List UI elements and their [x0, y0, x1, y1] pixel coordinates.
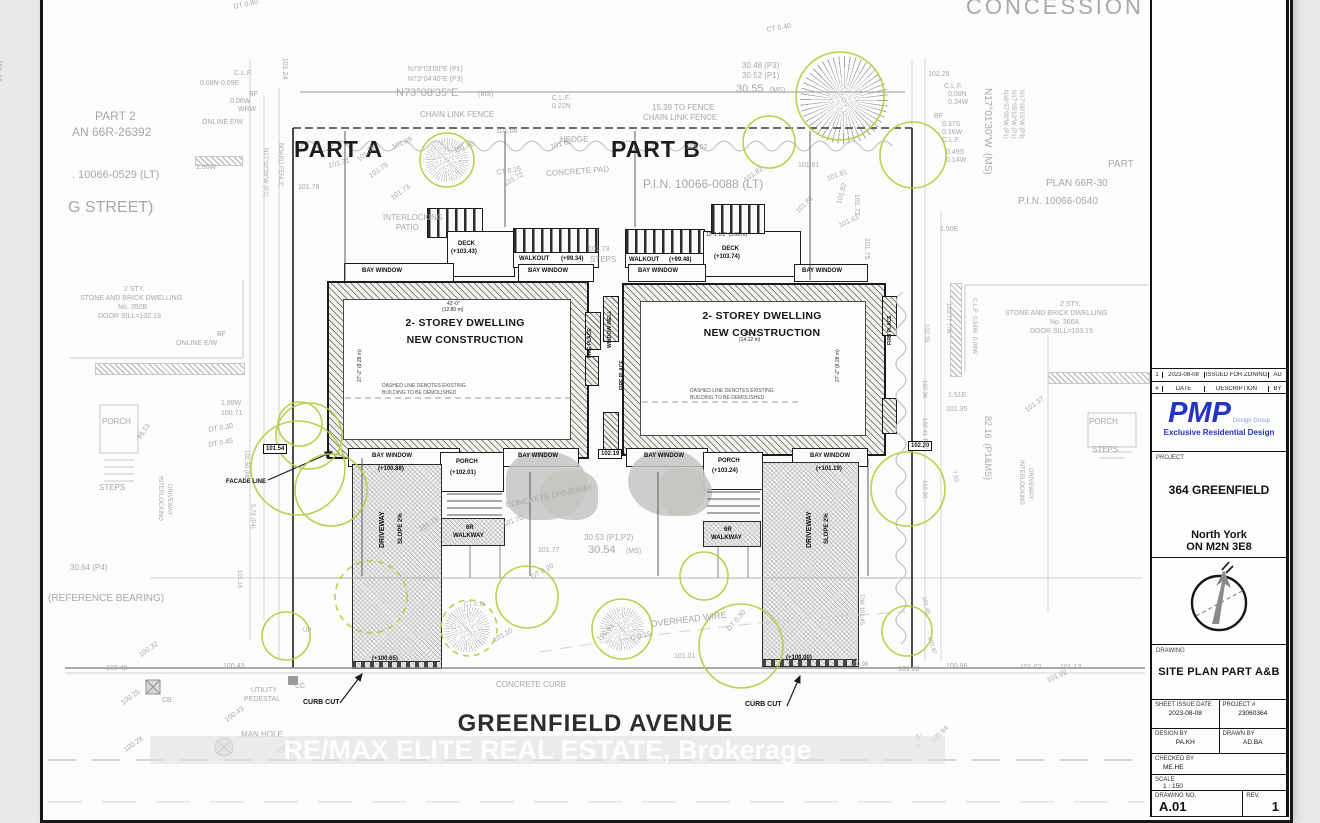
annotation-label: DT 0.20	[530, 563, 555, 581]
annotation-label: PORCH	[456, 459, 478, 465]
annotation-label: DT 0.80	[233, 0, 259, 11]
annotation-label: 100.96	[946, 663, 967, 670]
annotation-label: (+100.00)	[786, 655, 812, 661]
annotation-label: 1.89W	[221, 400, 241, 407]
annotation-label: 101.73	[390, 184, 412, 202]
annotation-label: 6R	[466, 525, 474, 531]
annotation-label: 102.36	[921, 380, 927, 398]
annotation-label: BAY WINDOW	[528, 268, 568, 274]
annotation-label: 5.79 (P4)	[249, 504, 255, 529]
annotation-label: DRIVEWAY	[1027, 468, 1033, 499]
annotation-label: 82.16 (P1&MS)	[983, 416, 992, 480]
annotation-label: WALKWAY	[453, 533, 484, 539]
annotation-label: (REFERENCE BEARING)	[48, 594, 164, 604]
annotation-label: 101.01	[674, 653, 695, 660]
annotation-label: PLAN 66R-30	[1046, 179, 1108, 189]
annotation-label: 101.03	[898, 666, 919, 673]
annotation-label: PART 2	[95, 110, 136, 122]
annotation-label: . 10066-0529 (LT)	[72, 170, 159, 181]
annotation-label: 12'-1 1/2" (3.69 m)	[706, 233, 747, 238]
annotation-label: CONCRETE DRIVEWAY	[505, 484, 594, 510]
annotation-label: 100.71	[221, 410, 242, 417]
annotation-label: 30.54	[588, 545, 616, 556]
annotation-label: BF	[934, 113, 943, 120]
annotation-label: 0.08N-0.09E	[200, 80, 239, 87]
annotation-label: STEPS	[590, 256, 616, 264]
annotation-label: PORCH	[1089, 418, 1118, 426]
annotation-label: BAY WINDOW	[518, 453, 558, 459]
annotation-layer: CONCESSION 1DT 0.80N73°03'00"E (P1)N73°0…	[0, 0, 1320, 809]
project-name: 364 GREENFIELD	[1152, 483, 1286, 497]
annotation-label: (MS)	[478, 91, 493, 98]
annotation-label: 102.50 (MS)	[243, 450, 249, 483]
annotation-label: WINDOW WELL	[608, 311, 613, 349]
title-block: 1 2023-08-08 ISSUED FOR ZONING AD # DATE…	[1150, 0, 1289, 817]
annotation-label: 101.62	[686, 144, 707, 151]
annotation-label: 0.34W	[948, 99, 968, 106]
annotation-label: BAY WINDOW	[810, 453, 850, 459]
annotation-label: (+99.48)	[669, 257, 692, 263]
annotation-label: BAY WINDOW	[638, 268, 678, 274]
annotation-label: (+99.34)	[561, 256, 584, 262]
project-number-cell: PROJECT # 23060364	[1219, 700, 1287, 728]
annotation-label: STEPS	[1092, 446, 1118, 454]
annotation-label: DRIVEWAY	[806, 511, 813, 548]
checked-by-cell: CHECKED BY ME.HE	[1152, 754, 1286, 774]
annotation-label: WALKOUT	[519, 256, 549, 262]
annotation-label: 103.77 T/W	[945, 303, 951, 334]
drawing-title: SITE PLAN PART A&B	[1152, 666, 1286, 678]
annotation-label: 101.02	[1046, 669, 1068, 684]
annotation-label: 2 STY.	[124, 286, 145, 293]
annotation-label: 0.22N	[552, 103, 571, 110]
annotation-label: AN 66R-26392	[72, 126, 151, 138]
annotation-label: CONCRETE PAD	[546, 166, 609, 178]
annotation-label: WALKOUT	[629, 257, 659, 263]
site-plan: 2- STOREY DWELLING NEW CONSTRUCTION DASH…	[0, 0, 1320, 809]
project-city: North York	[1152, 529, 1286, 541]
annotation-label: (MS)	[626, 548, 641, 555]
annotation-label: FIRE PLACE	[888, 315, 893, 345]
annotation-label: BOARD FENCE	[277, 143, 283, 186]
annotation-label: BAY WINDOW	[372, 453, 412, 459]
annotation-label: (MS)	[770, 87, 785, 94]
annotation-label: 0.49S	[946, 149, 964, 156]
annotation-label: No. 352B	[118, 304, 147, 311]
annotation-label: 1.50E	[940, 226, 958, 233]
annotation-label: 101.24	[281, 58, 288, 79]
annotation-label: 101.37	[1024, 396, 1046, 414]
annotation-label: 101.54	[263, 444, 287, 454]
annotation-label: UP	[303, 628, 311, 634]
annotation-label: G STREET)	[68, 200, 153, 216]
annotation-label: INTERLOCKING	[157, 476, 163, 521]
annotation-label: 101.73	[853, 194, 860, 215]
north-arrow-icon	[1152, 558, 1286, 644]
annotation-label: 102.41 T/W	[921, 418, 927, 449]
annotation-label: 101.81	[826, 169, 849, 183]
annotation-label: CONCRETE CURB	[496, 681, 566, 689]
annotation-label: 100.97	[926, 636, 937, 655]
annotation-label: DECK	[458, 241, 475, 247]
drawing-label: DRAWING	[1152, 645, 1286, 654]
annotation-label: N73°03'00"E (P1)	[408, 66, 463, 73]
annotation-label: BF	[249, 91, 258, 98]
annotation-label: STONE AND BRICK DWELLING	[80, 295, 182, 302]
annotation-label: 100.98	[850, 662, 868, 668]
annotation-label: DECK	[722, 246, 739, 252]
drawn-by-cell: DRAWN BY AD.BA	[1219, 729, 1287, 753]
annotation-label: 102.35	[923, 324, 929, 342]
annotation-label: CURB CUT	[745, 701, 782, 708]
annotation-label: N17°00'15"W (P3)	[1018, 90, 1024, 139]
annotation-label: CT 0.15	[464, 602, 485, 608]
annotation-label: PORCH	[102, 418, 131, 426]
annotation-label: N17°02'30"W (P1)	[262, 148, 268, 197]
annotation-label: FIRE PLACE	[620, 360, 625, 390]
project-block: PROJECT 364 GREENFIELD North York ON M2N…	[1152, 452, 1286, 558]
annotation-label: 101.75	[368, 162, 390, 180]
annotation-label: N17°01'30"W (MS)	[982, 88, 992, 175]
design-by-cell: DESIGN BY PA.KH	[1152, 729, 1219, 753]
annotation-label: OVERHEAD WIRE	[650, 611, 727, 629]
annotation-label: 101.10	[492, 627, 514, 644]
annotation-label: DOOR SILL=103.15	[1030, 328, 1093, 335]
annotation-label: (+103.74)	[714, 254, 740, 260]
annotation-label: 27'-2" (8.28 m)	[358, 349, 363, 382]
annotation-label: (+102.01)	[450, 470, 476, 476]
annotation-label: (14.12 m)	[739, 338, 760, 343]
annotation-label: 0.16W	[942, 129, 962, 136]
annotation-label: N73°04'40"E (P3)	[408, 76, 463, 83]
annotation-label: 101.77	[538, 547, 559, 554]
annotation-label: STONE AND BRICK DWELLING	[1005, 310, 1107, 317]
annotation-label: 101.46	[920, 596, 931, 615]
annotation-label: 30.53 (P1,P2)	[584, 534, 633, 542]
annotation-label: 27'-2" (8.28 m)	[836, 349, 841, 382]
annotation-label: 101.82	[836, 182, 848, 205]
annotation-label: 100.43	[224, 706, 246, 724]
annotation-label: N73°08'35"E	[396, 88, 458, 99]
annotation-label: DOOR SILL=102.19	[98, 313, 161, 320]
sheet-issue-date-cell: SHEET ISSUE DATE 2023-08-08	[1152, 700, 1219, 728]
annotation-label: (12.80 m)	[442, 308, 463, 313]
annotation-label: 102.19	[598, 449, 622, 459]
annotation-label: BAY WINDOW	[644, 453, 684, 459]
title-fields: SHEET ISSUE DATE 2023-08-08 PROJECT # 23…	[1152, 700, 1286, 817]
annotation-label: 2 STY.	[1060, 301, 1081, 308]
annotation-label: 101.81	[798, 162, 819, 169]
annotation-label: 30.48 (P3)	[742, 62, 779, 70]
annotation-label: BF	[217, 331, 226, 338]
annotation-label: (+101.19)	[816, 466, 842, 472]
annotation-label: BAY WINDOW	[362, 268, 402, 274]
annotation-label: N17°05'10"W (P1)	[1010, 90, 1016, 139]
annotation-label: 101.78	[298, 184, 319, 191]
annotation-label: PEDESTAL	[244, 696, 280, 703]
annotation-label: CONCESSION 1	[966, 0, 1168, 18]
annotation-label: (+103.24)	[712, 468, 738, 474]
annotation-label: 0.08N	[948, 91, 967, 98]
annotation-label: CT 0.40	[766, 23, 792, 34]
north-arrow-block	[1152, 558, 1286, 645]
annotation-label: 100.40	[106, 665, 127, 672]
annotation-label: 15.39 TO FENCE	[652, 104, 714, 112]
annotation-label: 30.55	[736, 84, 764, 95]
annotation-label: 100.43	[223, 663, 244, 670]
annotation-label: 101.02	[1020, 664, 1041, 671]
annotation-label: CHAIN LINK FENCE	[420, 111, 494, 119]
annotation-label: 101.24	[0, 60, 2, 81]
scale-cell: SCALE 1 : 150	[1152, 775, 1286, 790]
annotation-label: UTILITY	[251, 687, 277, 694]
annotation-label: C.L.F 0.94W 0.09W	[971, 298, 977, 354]
annotation-label: DT 0.45	[208, 438, 234, 449]
annotation-label: WALKWAY	[711, 535, 742, 541]
annotation-label: 0.14W	[946, 157, 966, 164]
annotation-label: CB	[162, 697, 172, 704]
drawing-number-cell: DRAWING NO. A.01	[1152, 791, 1242, 817]
annotation-label: 101.73	[418, 516, 440, 533]
annotation-label: 101.66	[496, 128, 517, 135]
annotation-label: (+103.43)	[451, 249, 477, 255]
annotation-label: SLOPE 2%	[824, 513, 830, 544]
annotation-label: C.L.F.	[944, 83, 962, 90]
annotation-label: INTERLOCKING	[1018, 460, 1024, 505]
annotation-label: 101.73	[588, 246, 609, 253]
annotation-label: 7.53	[950, 470, 959, 483]
annotation-label: DRIVEWAY	[166, 484, 172, 515]
annotation-label: C.L.F.	[552, 95, 570, 102]
annotation-label: 100.32	[138, 641, 160, 659]
annotation-label: SLOPE 2%	[398, 513, 404, 544]
annotation-label: 101.80	[453, 141, 476, 155]
annotation-label: 101.69	[391, 136, 413, 151]
annotation-label: FIRE PLACE	[588, 328, 593, 358]
annotation-label: 101.16	[236, 570, 242, 588]
annotation-label: 0.37S	[942, 121, 960, 128]
annotation-label: 101.75	[863, 238, 870, 259]
annotation-label: DT 0.30	[208, 423, 234, 434]
annotation-label: 101.62	[550, 138, 573, 150]
annotation-label: 6R	[724, 527, 732, 533]
annotation-label: CURB CUT	[303, 699, 340, 706]
logo-group-text: Design Group	[1233, 418, 1270, 424]
watermark: RE/MAX ELITE REAL ESTATE, Brokerage	[150, 736, 945, 764]
annotation-label: 1.51E	[948, 392, 966, 399]
annotation-label: 101.35	[946, 406, 967, 413]
annotation-label: 101.82	[795, 195, 815, 215]
annotation-label: 100.28	[123, 736, 145, 754]
annotation-label: PART	[1108, 160, 1134, 170]
revision-table: 1 2023-08-08 ISSUED FOR ZONING AD # DATE…	[1152, 368, 1286, 394]
annotation-label: P.I.N. 10066-0540	[1018, 197, 1098, 207]
logo-pmp-text: PMP	[1168, 397, 1231, 429]
annotation-label: (+100.88)	[378, 466, 404, 472]
annotation-label: INTERLOCKING	[383, 214, 443, 222]
drawing-block: DRAWING SITE PLAN PART A&B	[1152, 645, 1286, 700]
annotation-label: 102.25	[928, 71, 949, 78]
revision-row: 1 2023-08-08 ISSUED FOR ZONING AD	[1152, 369, 1286, 382]
project-postal: ON M2N 3E8	[1152, 541, 1286, 553]
annotation-label: WRW	[238, 106, 256, 113]
logo-tagline: Exclusive Residential Design	[1152, 428, 1286, 437]
annotation-label: 2.86W	[196, 164, 216, 171]
annotation-label: PORCH	[718, 458, 740, 464]
annotation-label: ONLINE E/W	[202, 119, 243, 126]
annotation-label: 100.25	[120, 689, 142, 707]
annotation-label: 102.28	[921, 480, 927, 498]
annotation-label: PATIO	[396, 224, 419, 232]
annotation-label: CHAIN LINK FENCE	[643, 114, 717, 122]
annotation-label: C.L.F.	[234, 70, 252, 77]
annotation-label: T/W 101.45	[858, 594, 864, 625]
company-logo: PMPDesign Group Exclusive Residential De…	[1152, 394, 1286, 452]
annotation-label: DRIVEWAY	[379, 511, 386, 548]
annotation-label: 101.70	[502, 515, 525, 529]
annotation-label: 101.61	[838, 214, 860, 229]
annotation-label: 30.64 (P4)	[70, 564, 107, 572]
annotation-label: STEPS	[99, 484, 125, 492]
annotation-label: ONLINE E/W	[176, 340, 217, 347]
annotation-label: CC	[295, 683, 305, 690]
project-label: PROJECT	[1152, 452, 1286, 461]
revision-cell: REV. 1	[1242, 791, 1286, 817]
annotation-label: C 0.15	[630, 631, 652, 643]
annotation-label: (+100.65)	[372, 656, 398, 662]
annotation-label: C.L.F.	[942, 137, 960, 144]
annotation-label: 0.06W	[230, 98, 250, 105]
annotation-label: No. 366A	[1050, 319, 1079, 326]
annotation-label: 99.13	[136, 423, 152, 441]
annotation-label: 100.93	[596, 623, 616, 643]
annotation-label: 30.52 (P1)	[742, 72, 779, 80]
annotation-label: N16°57'00"W (P1)	[1002, 90, 1008, 139]
annotation-label: DT 0.30	[726, 609, 747, 632]
annotation-label: BAY WINDOW	[802, 268, 842, 274]
